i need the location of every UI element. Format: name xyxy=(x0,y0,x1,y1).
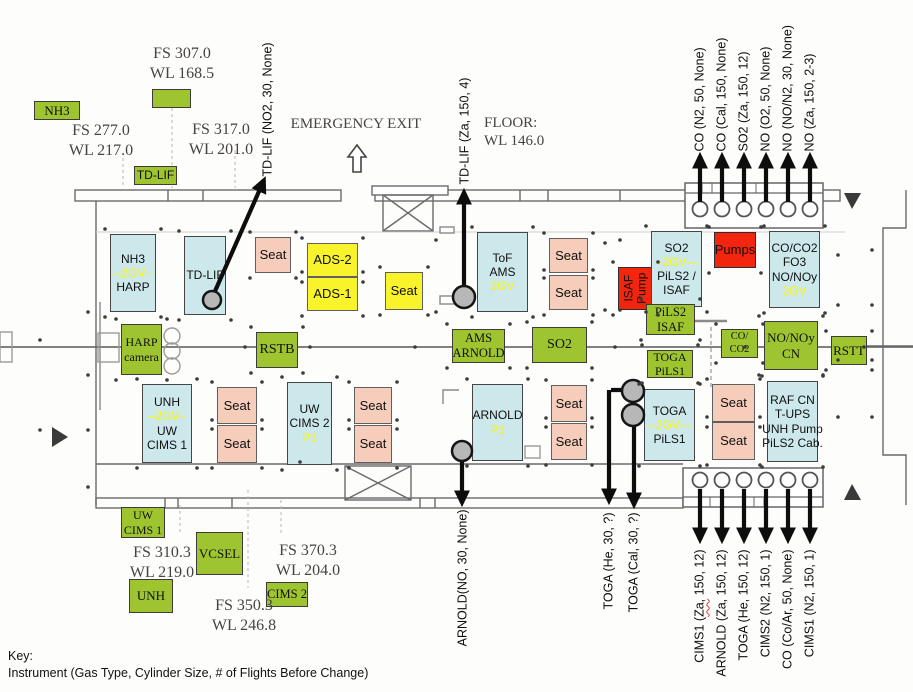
cylinder-label-top_right-3: NO (O2, 50, None) xyxy=(759,1,774,151)
emergency-exit-text-line: EMERGENCY EXIT xyxy=(256,115,456,133)
aircraft-floor-plan: NH3--2GV--HARPTD-LIFSeatADS-2ADS-1SeatTo… xyxy=(0,0,913,692)
cylinder-label-top_center-1: TD-LIF (Za, 150, 4) xyxy=(458,34,473,184)
cylinder-label-top_right-1: CO (Cal, 150, None) xyxy=(715,1,730,151)
legend: Key: Instrument (Gas Type, Cylinder Size… xyxy=(8,648,368,682)
cylinder-label-top_right-2: SO2 (Za, 150, 12) xyxy=(737,1,752,151)
fs-307-line: WL 168.5 xyxy=(82,64,282,84)
fs-370-line: WL 204.0 xyxy=(208,561,408,581)
cylinder-label-bottom_right-4: CO (Co/Ar, 50, None) xyxy=(781,549,796,692)
fs-317-line: WL 201.0 xyxy=(121,140,321,160)
fs-350-line: FS 350.3 xyxy=(144,596,344,616)
cylinder-label-bottom_right-0: CIMS1 (Za, 150, 12) xyxy=(693,549,708,692)
emergency-exit-text: EMERGENCY EXIT xyxy=(256,115,456,133)
cylinder-label-bottom_right-3: CIMS2 (N2, 150, 1) xyxy=(759,549,774,692)
cylinder-label-top_right-4: NO (NO/N2, 30, None) xyxy=(781,1,796,151)
text-layer: Key: Instrument (Gas Type, Cylinder Size… xyxy=(0,0,913,692)
fs-350-line: WL 246.8 xyxy=(144,616,344,636)
cylinder-label-bottom_right-5: CIMS1 (N2, 150, 1) xyxy=(803,549,818,692)
fs-370-line: FS 370.3 xyxy=(208,541,408,561)
legend-line: Instrument (Gas Type, Cylinder Size, # o… xyxy=(8,665,368,682)
fs-370: FS 370.3WL 204.0 xyxy=(208,541,408,580)
cylinder-label-bottom_center-0: ARNOLD(NO, 30, None) xyxy=(456,509,471,659)
floor-text-line: WL 146.0 xyxy=(484,132,544,150)
cylinder-label-bottom_right-2: TOGA (He, 150, 12) xyxy=(737,549,752,692)
legend-title: Key: xyxy=(8,648,368,665)
fs-307: FS 307.0WL 168.5 xyxy=(82,44,282,83)
cylinder-label-bottom_right-1: ARNOLD (Za, 150, 12) xyxy=(715,549,730,692)
floor-text-line: FLOOR: xyxy=(484,114,544,132)
cylinder-label-top_right-0: CO (N2, 50, None) xyxy=(693,1,708,151)
fs-350: FS 350.3WL 246.8 xyxy=(144,596,344,635)
fs-307-line: FS 307.0 xyxy=(82,44,282,64)
cylinder-label-top_right-5: NO (Za, 150, 2-3) xyxy=(803,1,818,151)
cylinder-label-top_center-0: TD-LIF (NO2, 30, None) xyxy=(261,26,276,176)
cylinder-label-bottom_center-1: TOGA (He, 30, ?) xyxy=(602,512,617,662)
cylinder-label-bottom_center-2: TOGA (Cal, 30, ?) xyxy=(627,512,642,662)
floor-text: FLOOR:WL 146.0 xyxy=(484,114,544,151)
spellcheck-squiggle: Za, xyxy=(693,598,707,616)
